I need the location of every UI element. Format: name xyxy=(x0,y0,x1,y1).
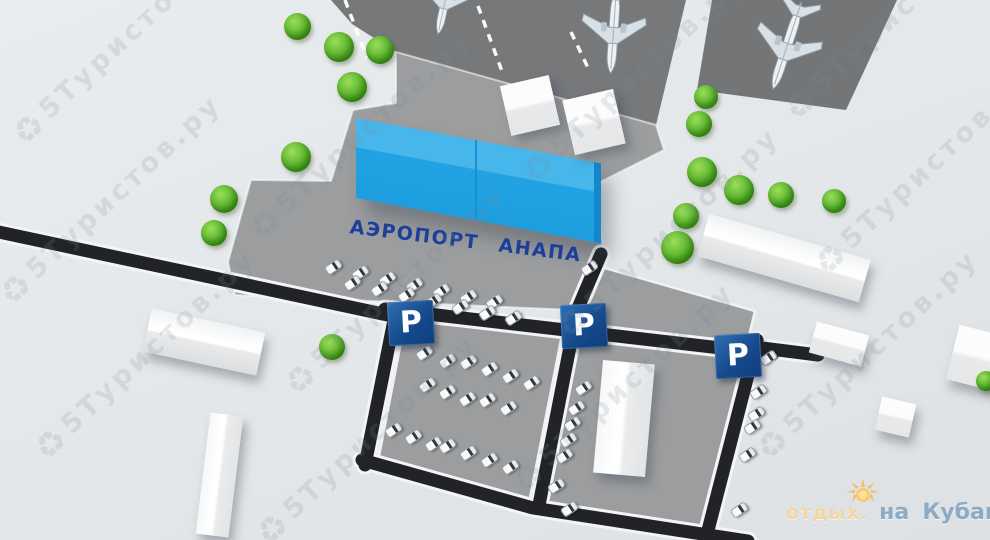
tree-icon xyxy=(366,36,394,64)
logo-prefix: отдых. xyxy=(786,502,868,524)
tree-icon xyxy=(324,32,354,62)
site-logo: отдых. на Кубани.ру xyxy=(786,500,990,525)
tree-icon xyxy=(687,157,717,187)
airport-map: АЭРОПОРТ АНАПА отдых. на Кубани.ру PPP♻5… xyxy=(0,0,990,540)
tree-icon xyxy=(281,142,311,172)
tree-icon xyxy=(694,85,718,109)
tree-icon xyxy=(976,371,990,391)
tree-icon xyxy=(319,334,345,360)
tree-icon xyxy=(210,185,238,213)
logo-word-na: на xyxy=(879,500,909,525)
building-parking-east xyxy=(593,360,655,477)
parking-sign[interactable]: P xyxy=(714,333,762,379)
parking-sign[interactable]: P xyxy=(387,300,435,346)
logo-word-kubani: Кубани xyxy=(922,500,990,525)
tree-icon xyxy=(284,13,311,40)
parking-sign[interactable]: P xyxy=(560,303,608,349)
tree-icon xyxy=(201,220,227,246)
tree-icon xyxy=(661,231,694,264)
tree-icon xyxy=(686,111,712,137)
tree-icon xyxy=(822,189,846,213)
tree-icon xyxy=(673,203,699,229)
tree-icon xyxy=(768,182,794,208)
tree-icon xyxy=(337,72,367,102)
tree-icon xyxy=(724,175,754,205)
